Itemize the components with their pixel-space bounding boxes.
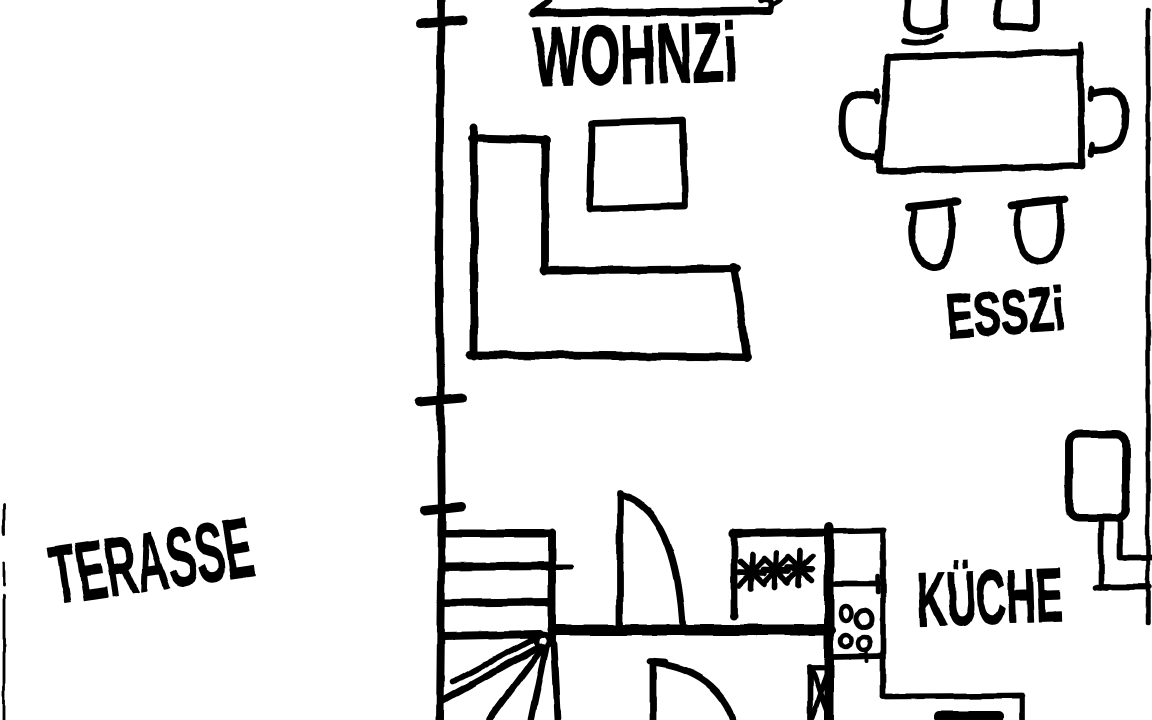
svg-text:KÜCHE: KÜCHE [916, 553, 1065, 643]
svg-text:ESSZi: ESSZi [944, 275, 1067, 352]
svg-text:WOHNZi: WOHNZi [532, 5, 738, 104]
svg-text:TERASSE: TERASSE [44, 500, 260, 623]
